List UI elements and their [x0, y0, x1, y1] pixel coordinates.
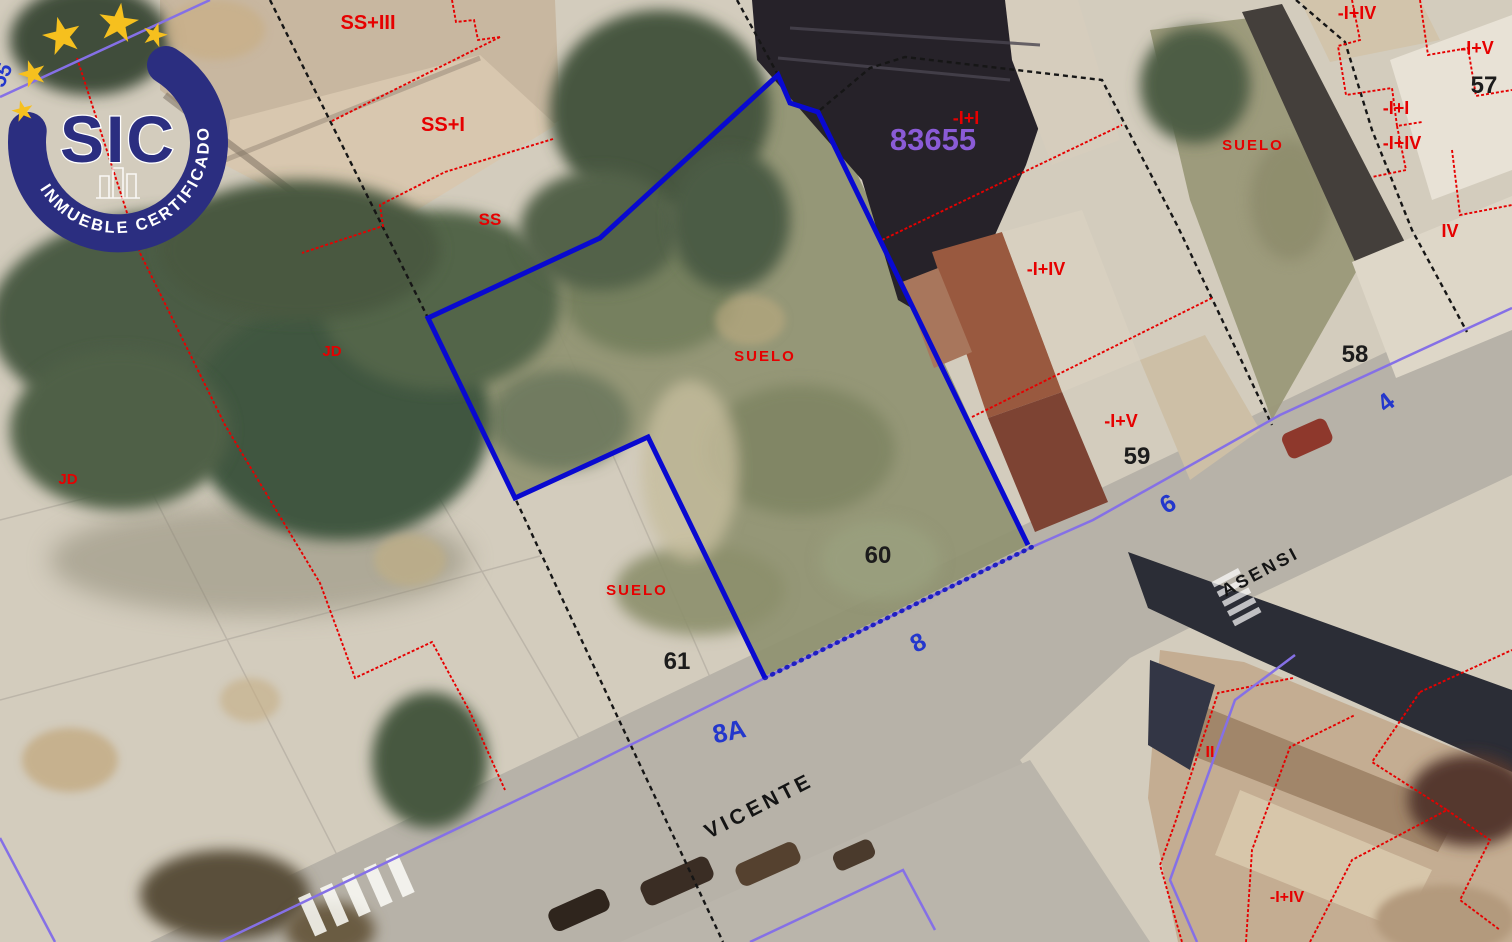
floor-label: -I+IV — [1383, 133, 1422, 153]
floor-label: -I+I — [1383, 98, 1410, 118]
parcel-number-58: 58 — [1342, 341, 1369, 368]
parcel-number-57: 57 — [1471, 72, 1498, 99]
floor-label: -I+IV — [1027, 259, 1066, 279]
floor-label: SS — [479, 210, 502, 229]
cadastral-map-viewport[interactable]: SS+III SS+I SS SUELO SUELO SUELO JD JD -… — [0, 0, 1512, 942]
parcel-number-61: 61 — [664, 648, 691, 675]
parcel-number-59: 59 — [1124, 443, 1151, 470]
floor-label: II — [1206, 744, 1215, 761]
floor-label: SS+III — [340, 12, 395, 34]
floor-label: IV — [1441, 221, 1458, 241]
land-use-label: SUELO — [734, 348, 796, 365]
land-use-label: JD — [322, 343, 341, 360]
map-canvas: SS+III SS+I SS SUELO SUELO SUELO JD JD -… — [0, 0, 1512, 942]
floor-label: SS+I — [421, 114, 465, 136]
land-use-label: JD — [58, 471, 77, 488]
parcel-number-60: 60 — [865, 542, 892, 569]
land-use-label: SUELO — [1222, 137, 1284, 154]
floor-label: -I+IV — [1270, 889, 1305, 906]
land-use-label: SUELO — [606, 582, 668, 599]
selected-parcel-reference: 83655 — [890, 122, 976, 157]
logo-abbreviation: SIC — [60, 102, 176, 176]
floor-label: -I+V — [1104, 411, 1138, 431]
floor-label: -I+IV — [1338, 3, 1377, 23]
floor-label: -I+V — [1460, 38, 1494, 58]
